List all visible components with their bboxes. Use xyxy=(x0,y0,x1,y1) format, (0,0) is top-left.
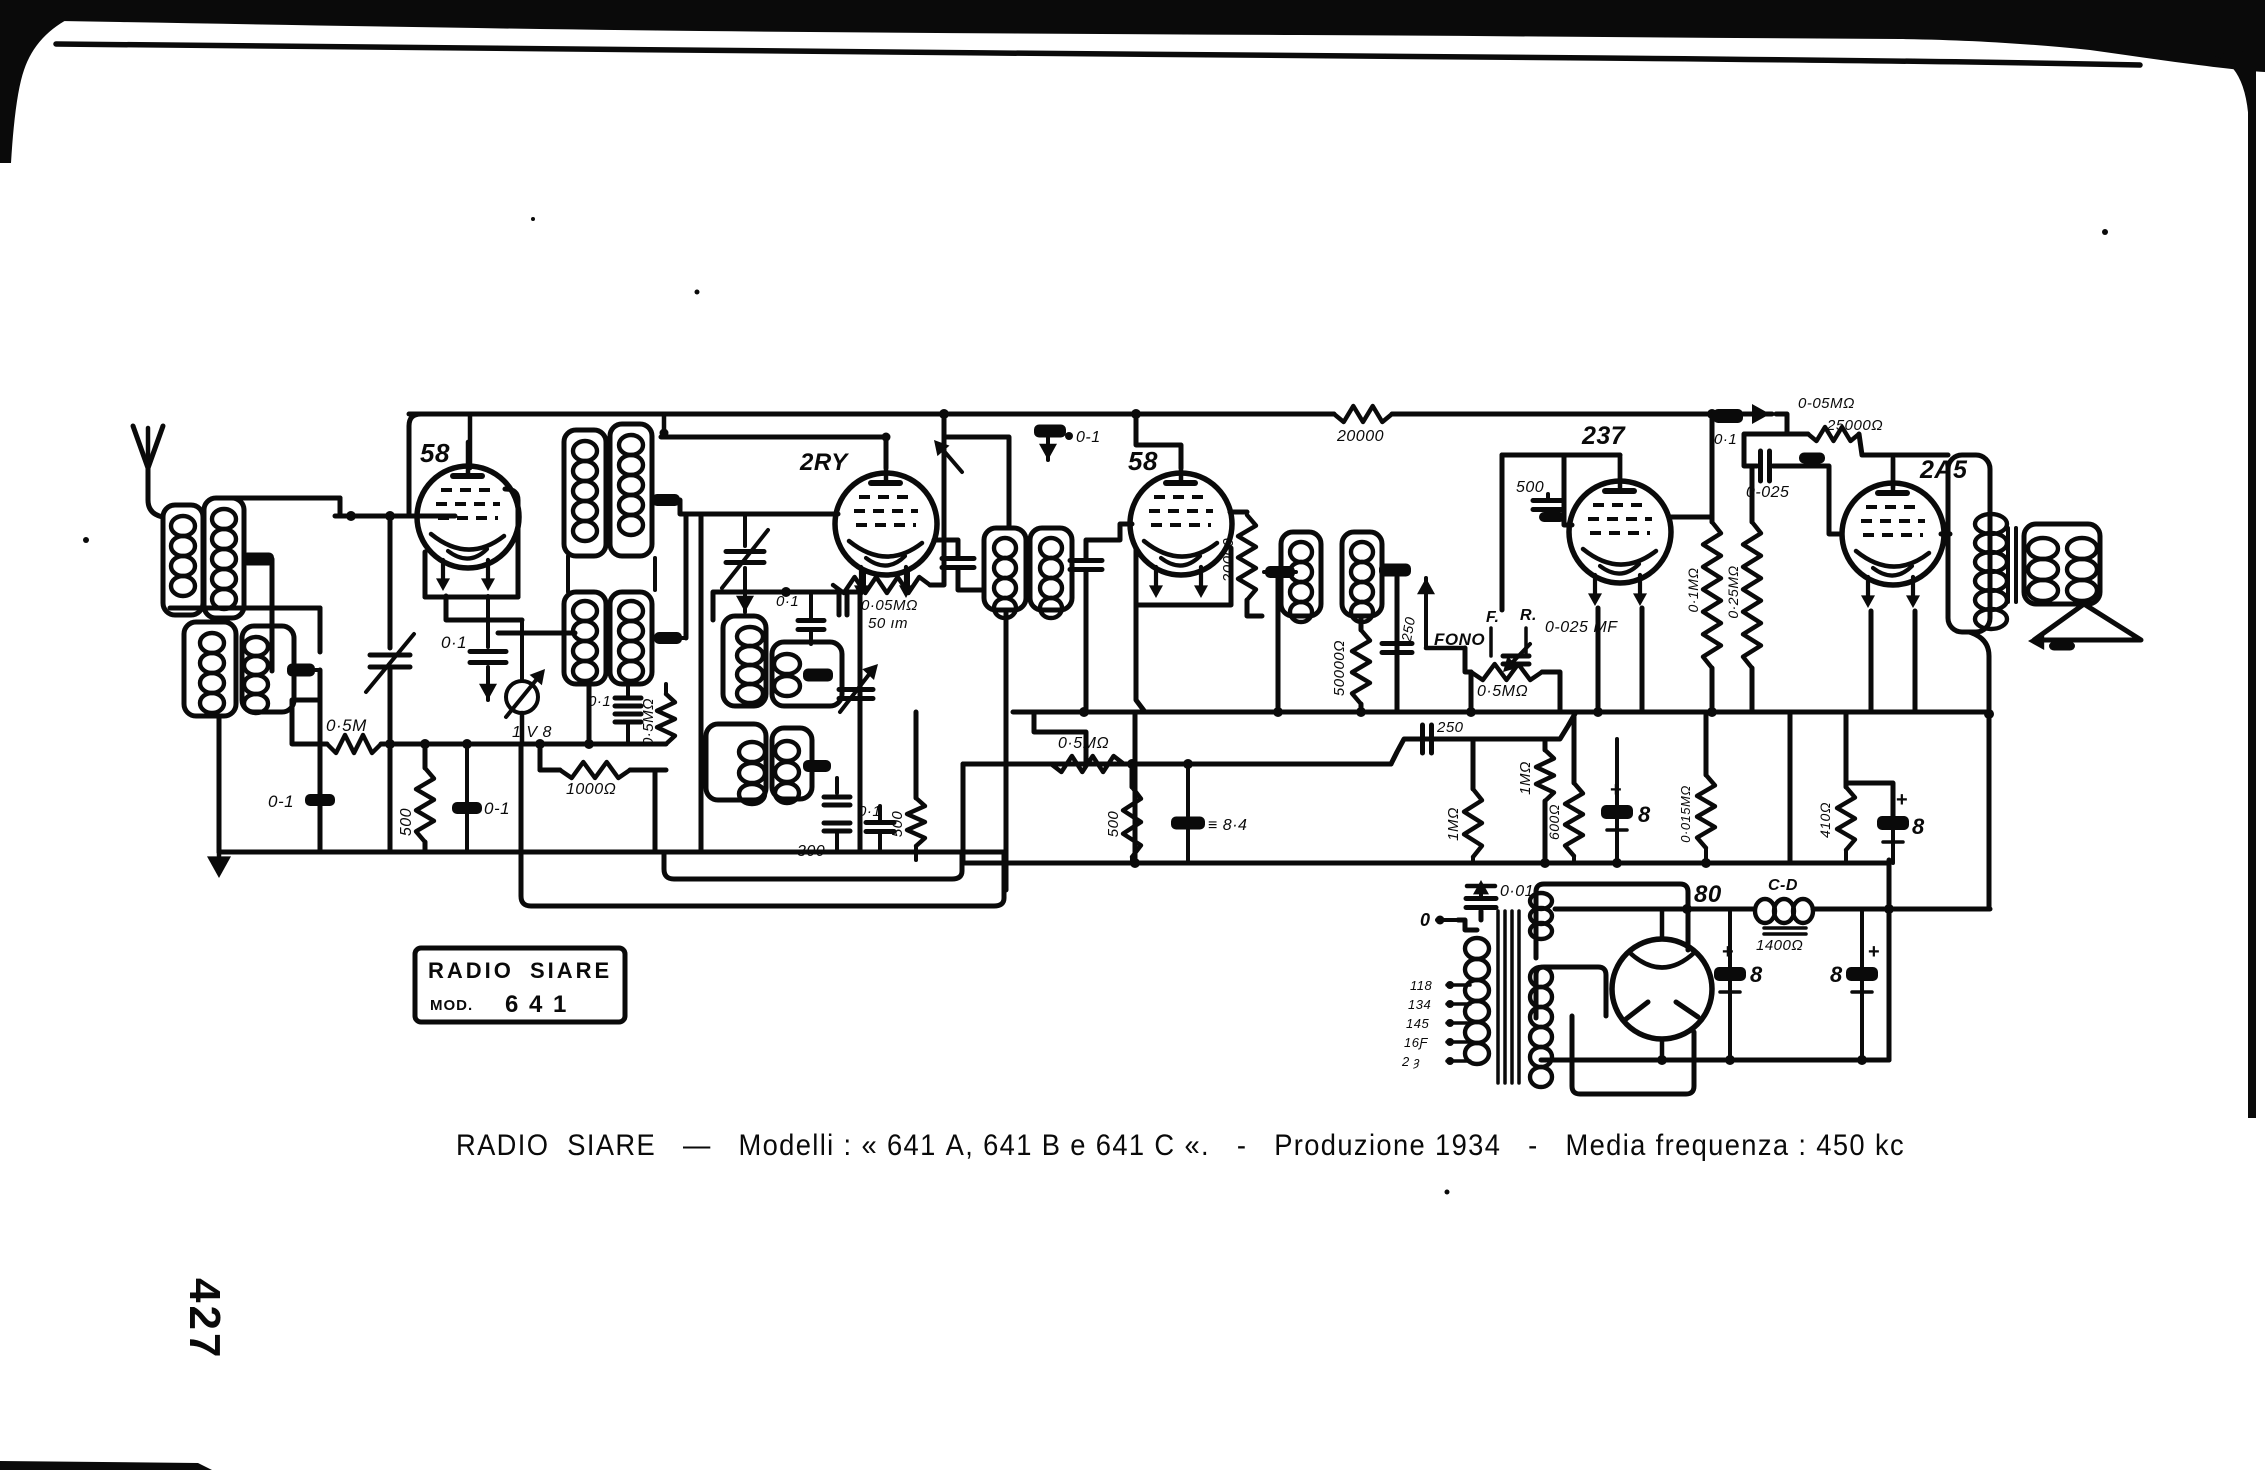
svg-text:25000Ω: 25000Ω xyxy=(1826,417,1883,434)
svg-text:0·5M: 0·5M xyxy=(326,716,367,735)
svg-text:8: 8 xyxy=(1912,814,1925,839)
svg-text:2 ȝ: 2 ȝ xyxy=(1401,1054,1420,1069)
svg-text:1MΩ: 1MΩ xyxy=(1517,761,1534,795)
svg-text:58: 58 xyxy=(1128,446,1158,476)
svg-text:8: 8 xyxy=(1750,962,1763,987)
svg-text:SIARE: SIARE xyxy=(530,958,612,983)
svg-text:RADIO SIARE — Modelli : «: RADIO SIARE — Modelli : « 641 A, 641 B e… xyxy=(456,1129,1905,1162)
svg-text:0: 0 xyxy=(1420,910,1431,930)
svg-text:50 ım: 50 ım xyxy=(868,615,908,632)
svg-text:500: 500 xyxy=(1516,479,1544,496)
svg-text:0-05MΩ: 0-05MΩ xyxy=(1798,395,1855,412)
svg-text:0-1: 0-1 xyxy=(484,799,510,818)
svg-text:58: 58 xyxy=(420,438,450,468)
svg-text:237: 237 xyxy=(1581,422,1626,450)
svg-text:50000Ω: 50000Ω xyxy=(1331,640,1348,696)
svg-text:1MΩ: 1MΩ xyxy=(1445,807,1462,841)
svg-text:427: 427 xyxy=(180,1278,229,1360)
svg-text:2Α5: 2Α5 xyxy=(1919,456,1968,484)
svg-text:0-025 MF: 0-025 MF xyxy=(1545,619,1618,636)
svg-text:80: 80 xyxy=(1694,881,1722,908)
svg-text:250: 250 xyxy=(1436,719,1464,736)
svg-text:20000: 20000 xyxy=(1336,428,1384,445)
svg-text:0·5MΩ: 0·5MΩ xyxy=(1058,735,1109,752)
svg-text:≡ 8·4: ≡ 8·4 xyxy=(1208,817,1247,834)
svg-text:0·1: 0·1 xyxy=(858,803,881,820)
svg-text:0·1MΩ: 0·1MΩ xyxy=(1685,567,1701,612)
svg-text:300: 300 xyxy=(797,843,825,860)
svg-text:500: 500 xyxy=(889,811,906,838)
svg-text:RADIO: RADIO xyxy=(428,958,514,983)
svg-text:6 4 1: 6 4 1 xyxy=(505,991,568,1018)
svg-text:0-1: 0-1 xyxy=(268,792,294,811)
svg-text:410Ω: 410Ω xyxy=(1817,802,1833,838)
svg-text:8: 8 xyxy=(1830,962,1843,987)
svg-text:2RY: 2RY xyxy=(799,449,849,476)
svg-text:0·25MΩ: 0·25MΩ xyxy=(1725,565,1741,618)
svg-text:C-D: C-D xyxy=(1768,877,1798,894)
svg-text:134: 134 xyxy=(1408,997,1431,1012)
svg-text:0·5MΩ: 0·5MΩ xyxy=(640,698,657,746)
svg-text:F.: F. xyxy=(1486,609,1499,626)
svg-text:R.: R. xyxy=(1520,607,1537,624)
svg-text:+: + xyxy=(1722,941,1734,963)
svg-text:8: 8 xyxy=(1638,802,1651,827)
svg-text:1000Ω: 1000Ω xyxy=(566,781,616,798)
svg-text:MOD.: MOD. xyxy=(430,997,473,1014)
svg-text:0·05MΩ: 0·05MΩ xyxy=(861,597,918,614)
svg-text:20000: 20000 xyxy=(1220,538,1237,583)
svg-text:+: + xyxy=(1610,779,1622,801)
svg-text:0·1: 0·1 xyxy=(441,633,467,652)
svg-text:0·1: 0·1 xyxy=(776,593,799,610)
svg-text:FONO: FONO xyxy=(1434,630,1485,649)
svg-text:16Ƒ: 16Ƒ xyxy=(1404,1035,1428,1050)
svg-text:500: 500 xyxy=(1105,811,1122,838)
svg-text:0·1: 0·1 xyxy=(1714,431,1737,448)
svg-text:1400Ω: 1400Ω xyxy=(1756,937,1803,954)
svg-text:+: + xyxy=(1868,941,1880,963)
svg-text:1 V 8: 1 V 8 xyxy=(512,724,552,741)
svg-text:0·015MΩ: 0·015MΩ xyxy=(1678,785,1693,842)
svg-text:500: 500 xyxy=(398,808,415,836)
svg-text:0-1: 0-1 xyxy=(1076,429,1101,446)
svg-text:+: + xyxy=(1896,789,1908,811)
svg-text:0·5MΩ: 0·5MΩ xyxy=(1477,683,1528,700)
svg-text:118: 118 xyxy=(1410,978,1432,993)
svg-text:600Ω: 600Ω xyxy=(1546,804,1562,840)
svg-text:145: 145 xyxy=(1406,1016,1429,1031)
